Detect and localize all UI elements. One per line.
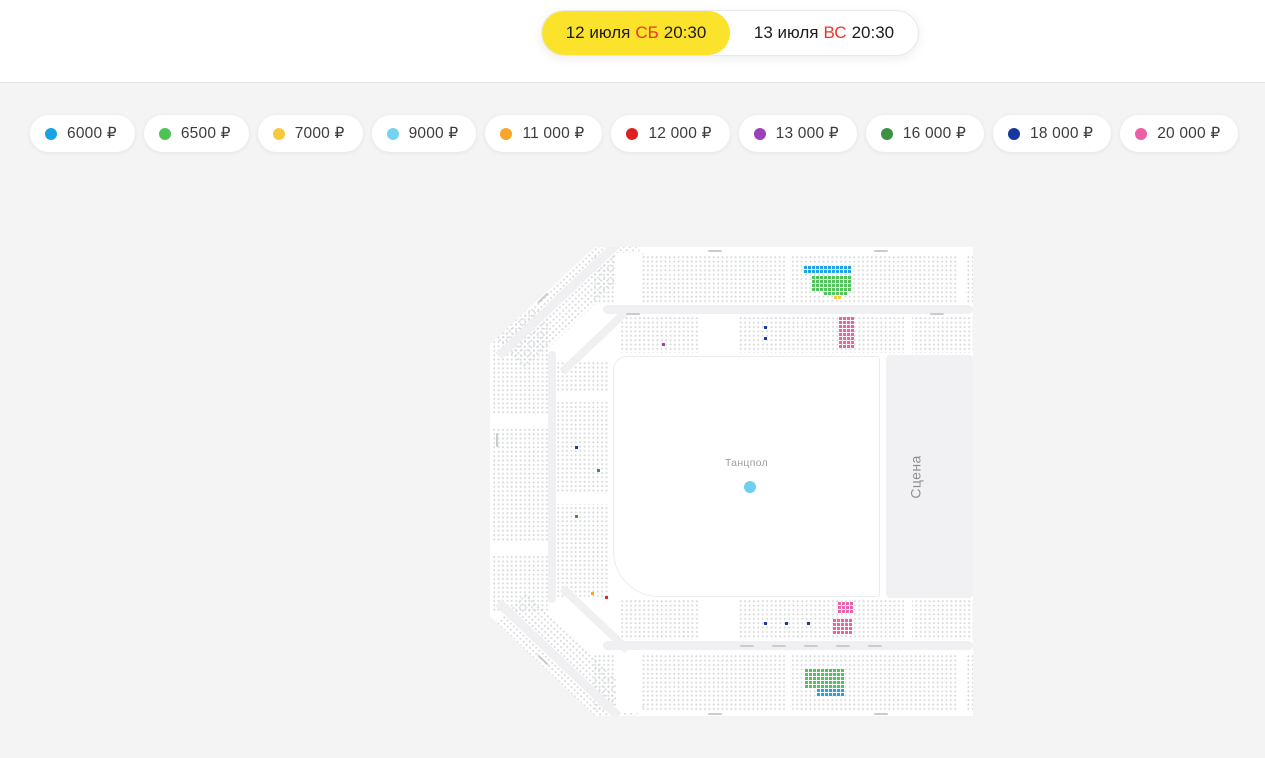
- legend-chip[interactable]: 6500 ₽: [144, 115, 249, 152]
- seat[interactable]: [837, 693, 840, 696]
- seat[interactable]: [821, 673, 824, 676]
- seat[interactable]: [844, 284, 847, 287]
- price-color-dot: [159, 128, 171, 140]
- seat[interactable]: [817, 689, 820, 692]
- seat[interactable]: [845, 623, 848, 626]
- seat-cluster: [575, 446, 578, 449]
- price-label: 11 000 ₽: [522, 124, 584, 143]
- seat[interactable]: [828, 288, 831, 291]
- seat[interactable]: [833, 669, 836, 672]
- stage-label: Сцена: [908, 455, 924, 498]
- seat-cluster: [591, 592, 594, 595]
- seat[interactable]: [837, 689, 840, 692]
- walkway: [548, 351, 556, 603]
- seat[interactable]: [833, 677, 836, 680]
- seat[interactable]: [813, 669, 816, 672]
- legend-chip[interactable]: 7000 ₽: [258, 115, 363, 152]
- seat[interactable]: [825, 685, 828, 688]
- seat[interactable]: [847, 345, 850, 348]
- seat[interactable]: [820, 284, 823, 287]
- seat[interactable]: [812, 266, 815, 269]
- seat[interactable]: [820, 276, 823, 279]
- seat[interactable]: [840, 280, 843, 283]
- seat[interactable]: [824, 276, 827, 279]
- seat[interactable]: [836, 266, 839, 269]
- seat[interactable]: [833, 623, 836, 626]
- seat[interactable]: [844, 292, 847, 295]
- seat[interactable]: [847, 341, 850, 344]
- seat[interactable]: [841, 681, 844, 684]
- seat[interactable]: [821, 685, 824, 688]
- aisle-gap: [698, 315, 738, 355]
- seat[interactable]: [840, 270, 843, 273]
- seat[interactable]: [820, 288, 823, 291]
- seat[interactable]: [833, 631, 836, 634]
- seat[interactable]: [833, 693, 836, 696]
- seat[interactable]: [824, 270, 827, 273]
- seat[interactable]: [605, 596, 608, 599]
- seat[interactable]: [820, 266, 823, 269]
- seat[interactable]: [837, 677, 840, 680]
- seat[interactable]: [825, 669, 828, 672]
- seat[interactable]: [837, 669, 840, 672]
- aisle-gap: [785, 253, 792, 305]
- seat[interactable]: [851, 325, 854, 328]
- aisle-gap: [554, 391, 610, 402]
- section-label-mark: [708, 250, 722, 252]
- seat-cluster: [605, 596, 608, 599]
- price-legend: 6000 ₽6500 ₽7000 ₽9000 ₽11 000 ₽12 000 ₽…: [30, 115, 1238, 152]
- seat[interactable]: [845, 631, 848, 634]
- seat[interactable]: [805, 673, 808, 676]
- seat[interactable]: [840, 284, 843, 287]
- seat[interactable]: [845, 619, 848, 622]
- seat[interactable]: [807, 622, 810, 625]
- price-color-dot: [1008, 128, 1020, 140]
- aisle-gap: [904, 597, 912, 641]
- price-color-dot: [1135, 128, 1147, 140]
- seat[interactable]: [841, 689, 844, 692]
- seat[interactable]: [828, 292, 831, 295]
- aisle-gap: [956, 653, 965, 713]
- seat[interactable]: [812, 280, 815, 283]
- seat-cluster: [838, 602, 853, 613]
- stage-area: Сцена: [886, 355, 973, 598]
- seat[interactable]: [837, 627, 840, 630]
- seat[interactable]: [842, 606, 845, 609]
- seat[interactable]: [805, 681, 808, 684]
- seat[interactable]: [844, 288, 847, 291]
- seat-cluster: [785, 622, 788, 625]
- seat[interactable]: [846, 602, 849, 605]
- seat-cluster: [764, 622, 767, 625]
- seat[interactable]: [851, 341, 854, 344]
- seat[interactable]: [836, 284, 839, 287]
- seat[interactable]: [841, 677, 844, 680]
- seat[interactable]: [820, 270, 823, 273]
- seat[interactable]: [849, 619, 852, 622]
- section-label-mark: [804, 645, 818, 647]
- seat[interactable]: [837, 619, 840, 622]
- seat[interactable]: [817, 681, 820, 684]
- seat[interactable]: [813, 681, 816, 684]
- seat[interactable]: [829, 673, 832, 676]
- seat[interactable]: [841, 673, 844, 676]
- seat[interactable]: [849, 623, 852, 626]
- seat[interactable]: [816, 284, 819, 287]
- tab-time-text: 20:30: [664, 23, 707, 43]
- walkway: [603, 641, 973, 650]
- header: 12 июля СБ 20:30 13 июля ВС 20:30: [0, 0, 1265, 83]
- seat[interactable]: [849, 631, 852, 634]
- seat-cluster: [575, 515, 578, 518]
- seat[interactable]: [847, 317, 850, 320]
- seat[interactable]: [843, 341, 846, 344]
- seat[interactable]: [838, 296, 841, 299]
- aisle-gap: [785, 653, 792, 713]
- seat[interactable]: [850, 606, 853, 609]
- seat[interactable]: [764, 337, 767, 340]
- seat[interactable]: [839, 325, 842, 328]
- walkway: [603, 305, 973, 314]
- seat-cluster: [597, 469, 600, 472]
- seat[interactable]: [812, 270, 815, 273]
- aisle-gap: [616, 253, 642, 305]
- section-label-mark: [868, 645, 882, 647]
- seat[interactable]: [848, 284, 851, 287]
- seat[interactable]: [834, 296, 837, 299]
- seat[interactable]: [812, 284, 815, 287]
- seat[interactable]: [848, 280, 851, 283]
- seat[interactable]: [851, 345, 854, 348]
- seat[interactable]: [804, 266, 807, 269]
- seat[interactable]: [841, 693, 844, 696]
- seat[interactable]: [851, 337, 854, 340]
- seat[interactable]: [825, 677, 828, 680]
- seat[interactable]: [846, 610, 849, 613]
- price-color-dot: [273, 128, 285, 140]
- tab-weekday-text: СБ: [635, 23, 658, 43]
- seat[interactable]: [828, 284, 831, 287]
- seat-cluster: [812, 276, 851, 291]
- seat[interactable]: [839, 345, 842, 348]
- seat[interactable]: [842, 610, 845, 613]
- seat[interactable]: [840, 276, 843, 279]
- seat[interactable]: [832, 284, 835, 287]
- seat[interactable]: [839, 341, 842, 344]
- seat[interactable]: [821, 693, 824, 696]
- seat[interactable]: [832, 276, 835, 279]
- price-label: 7000 ₽: [295, 124, 345, 143]
- seat[interactable]: [833, 681, 836, 684]
- seat[interactable]: [824, 292, 827, 295]
- seat[interactable]: [848, 270, 851, 273]
- seat[interactable]: [591, 592, 594, 595]
- seat[interactable]: [824, 288, 827, 291]
- seat[interactable]: [839, 321, 842, 324]
- seat[interactable]: [841, 619, 844, 622]
- seat[interactable]: [851, 321, 854, 324]
- seat[interactable]: [805, 677, 808, 680]
- seat[interactable]: [821, 689, 824, 692]
- seat[interactable]: [833, 689, 836, 692]
- seat[interactable]: [805, 669, 808, 672]
- seat-cluster: [804, 266, 851, 273]
- seat-cluster: [833, 619, 852, 634]
- seat[interactable]: [817, 669, 820, 672]
- seat[interactable]: [836, 288, 839, 291]
- seat[interactable]: [844, 276, 847, 279]
- seat-cluster: [764, 326, 767, 329]
- legend-chip[interactable]: 12 000 ₽: [611, 115, 729, 152]
- aisle-gap: [490, 541, 552, 554]
- seat[interactable]: [847, 333, 850, 336]
- seat[interactable]: [843, 333, 846, 336]
- seat[interactable]: [850, 610, 853, 613]
- tab-time-text: 20:30: [852, 23, 895, 43]
- legend-chip[interactable]: 18 000 ₽: [993, 115, 1111, 152]
- seat[interactable]: [821, 681, 824, 684]
- seat[interactable]: [841, 685, 844, 688]
- legend-chip[interactable]: 6000 ₽: [30, 115, 135, 152]
- seat[interactable]: [828, 266, 831, 269]
- seat[interactable]: [838, 610, 841, 613]
- seat[interactable]: [851, 329, 854, 332]
- seat[interactable]: [808, 270, 811, 273]
- dancefloor-ticket-dot[interactable]: [744, 481, 756, 493]
- seat[interactable]: [829, 669, 832, 672]
- price-label: 6000 ₽: [67, 124, 117, 143]
- seat[interactable]: [816, 266, 819, 269]
- seat[interactable]: [808, 266, 811, 269]
- aisle-gap: [698, 597, 738, 641]
- seat[interactable]: [843, 317, 846, 320]
- seat[interactable]: [832, 288, 835, 291]
- seat[interactable]: [833, 685, 836, 688]
- seat[interactable]: [845, 627, 848, 630]
- seating-section-bottom-inner: [620, 599, 973, 640]
- seat-cluster: [834, 296, 841, 299]
- seat[interactable]: [825, 681, 828, 684]
- seat-map[interactable]: Сцена Танцпол: [490, 245, 973, 718]
- seat[interactable]: [843, 345, 846, 348]
- seat[interactable]: [843, 321, 846, 324]
- price-color-dot: [754, 128, 766, 140]
- seat[interactable]: [848, 276, 851, 279]
- seat[interactable]: [764, 326, 767, 329]
- seat[interactable]: [832, 266, 835, 269]
- seat[interactable]: [829, 689, 832, 692]
- seat[interactable]: [575, 446, 578, 449]
- seat[interactable]: [785, 622, 788, 625]
- seat[interactable]: [575, 515, 578, 518]
- seat[interactable]: [839, 333, 842, 336]
- seat[interactable]: [809, 673, 812, 676]
- aisle-gap: [904, 315, 912, 355]
- seat[interactable]: [816, 276, 819, 279]
- seat[interactable]: [843, 337, 846, 340]
- seat[interactable]: [832, 292, 835, 295]
- aisle-gap: [554, 493, 610, 504]
- seat[interactable]: [809, 677, 812, 680]
- seat[interactable]: [833, 673, 836, 676]
- seat[interactable]: [840, 292, 843, 295]
- seat[interactable]: [821, 677, 824, 680]
- seat[interactable]: [809, 681, 812, 684]
- aisle-gap: [490, 415, 552, 429]
- seat[interactable]: [839, 337, 842, 340]
- seat[interactable]: [848, 266, 851, 269]
- seating-section-bottom-outer: [593, 654, 973, 712]
- seat[interactable]: [847, 325, 850, 328]
- price-label: 16 000 ₽: [903, 124, 966, 143]
- price-label: 6500 ₽: [181, 124, 231, 143]
- seat[interactable]: [597, 469, 600, 472]
- seat[interactable]: [844, 266, 847, 269]
- seat[interactable]: [840, 266, 843, 269]
- seat[interactable]: [813, 685, 816, 688]
- seat-cluster: [817, 689, 844, 696]
- seat[interactable]: [828, 270, 831, 273]
- seat[interactable]: [816, 288, 819, 291]
- seat[interactable]: [836, 292, 839, 295]
- seat[interactable]: [829, 681, 832, 684]
- seat[interactable]: [843, 329, 846, 332]
- seat[interactable]: [837, 685, 840, 688]
- aisle-gap: [616, 651, 642, 713]
- date-tabs: 12 июля СБ 20:30 13 июля ВС 20:30: [541, 10, 919, 56]
- seat[interactable]: [837, 623, 840, 626]
- seat[interactable]: [847, 329, 850, 332]
- legend-chip[interactable]: 13 000 ₽: [739, 115, 857, 152]
- seat[interactable]: [824, 266, 827, 269]
- legend-chip[interactable]: 9000 ₽: [372, 115, 477, 152]
- seat[interactable]: [805, 685, 808, 688]
- legend-chip[interactable]: 16 000 ₽: [866, 115, 984, 152]
- section-label-mark: [930, 313, 944, 315]
- seat[interactable]: [829, 685, 832, 688]
- seat[interactable]: [838, 602, 841, 605]
- tab-date-text: 13 июля: [754, 23, 819, 43]
- price-color-dot: [500, 128, 512, 140]
- aisle-gap: [956, 253, 965, 305]
- section-label-mark: [496, 433, 498, 447]
- seat[interactable]: [841, 669, 844, 672]
- seat[interactable]: [825, 693, 828, 696]
- seat[interactable]: [764, 622, 767, 625]
- seat[interactable]: [840, 288, 843, 291]
- seat[interactable]: [836, 270, 839, 273]
- section-label-mark: [708, 713, 722, 715]
- legend-chip[interactable]: 11 000 ₽: [485, 115, 602, 152]
- seat[interactable]: [809, 685, 812, 688]
- seat[interactable]: [813, 677, 816, 680]
- seating-section-top-outer: [593, 255, 973, 303]
- seat[interactable]: [825, 673, 828, 676]
- seat[interactable]: [849, 627, 852, 630]
- seat[interactable]: [828, 276, 831, 279]
- price-label: 13 000 ₽: [776, 124, 839, 143]
- seat[interactable]: [816, 280, 819, 283]
- seat[interactable]: [832, 270, 835, 273]
- seat-cluster: [805, 669, 844, 688]
- seat[interactable]: [837, 673, 840, 676]
- seat[interactable]: [829, 693, 832, 696]
- seat[interactable]: [846, 606, 849, 609]
- section-label-mark: [772, 645, 786, 647]
- seat[interactable]: [662, 343, 665, 346]
- seat[interactable]: [836, 280, 839, 283]
- seat-cluster: [839, 317, 854, 348]
- seat[interactable]: [825, 689, 828, 692]
- seat[interactable]: [847, 337, 850, 340]
- seat[interactable]: [836, 276, 839, 279]
- seat[interactable]: [817, 693, 820, 696]
- seat[interactable]: [841, 627, 844, 630]
- seat[interactable]: [837, 631, 840, 634]
- seat[interactable]: [820, 280, 823, 283]
- seat[interactable]: [851, 333, 854, 336]
- seat[interactable]: [821, 669, 824, 672]
- seat[interactable]: [843, 325, 846, 328]
- seating-section-top-inner: [620, 316, 973, 353]
- section-label-mark: [874, 713, 888, 715]
- price-label: 18 000 ₽: [1030, 124, 1093, 143]
- seat[interactable]: [812, 276, 815, 279]
- seat[interactable]: [816, 270, 819, 273]
- seat[interactable]: [841, 631, 844, 634]
- seat[interactable]: [824, 280, 827, 283]
- seat[interactable]: [841, 623, 844, 626]
- seat[interactable]: [842, 602, 845, 605]
- tab-date-13-july[interactable]: 13 июля ВС 20:30: [730, 11, 918, 55]
- price-label: 12 000 ₽: [648, 124, 711, 143]
- seat[interactable]: [829, 677, 832, 680]
- seat[interactable]: [817, 685, 820, 688]
- seat[interactable]: [833, 619, 836, 622]
- seat[interactable]: [847, 321, 850, 324]
- seat[interactable]: [809, 669, 812, 672]
- seat[interactable]: [844, 280, 847, 283]
- seat[interactable]: [812, 288, 815, 291]
- tab-weekday-text: ВС: [824, 23, 847, 43]
- price-color-dot: [387, 128, 399, 140]
- seat[interactable]: [804, 270, 807, 273]
- seat[interactable]: [828, 280, 831, 283]
- seat[interactable]: [817, 677, 820, 680]
- seat[interactable]: [817, 673, 820, 676]
- seat[interactable]: [833, 627, 836, 630]
- dancefloor-area[interactable]: Танцпол: [613, 356, 880, 597]
- seat[interactable]: [839, 329, 842, 332]
- seat[interactable]: [838, 606, 841, 609]
- section-label-mark: [626, 313, 640, 315]
- seat-cluster: [824, 292, 847, 295]
- seat[interactable]: [844, 270, 847, 273]
- seat[interactable]: [837, 681, 840, 684]
- seat[interactable]: [824, 284, 827, 287]
- seat[interactable]: [850, 602, 853, 605]
- legend-chip[interactable]: 20 000 ₽: [1120, 115, 1238, 152]
- seat[interactable]: [832, 280, 835, 283]
- section-label-mark: [740, 645, 754, 647]
- seat[interactable]: [851, 317, 854, 320]
- seat[interactable]: [839, 317, 842, 320]
- seat[interactable]: [848, 288, 851, 291]
- price-label: 9000 ₽: [409, 124, 459, 143]
- tab-date-12-july[interactable]: 12 июля СБ 20:30: [542, 11, 730, 55]
- seat[interactable]: [813, 673, 816, 676]
